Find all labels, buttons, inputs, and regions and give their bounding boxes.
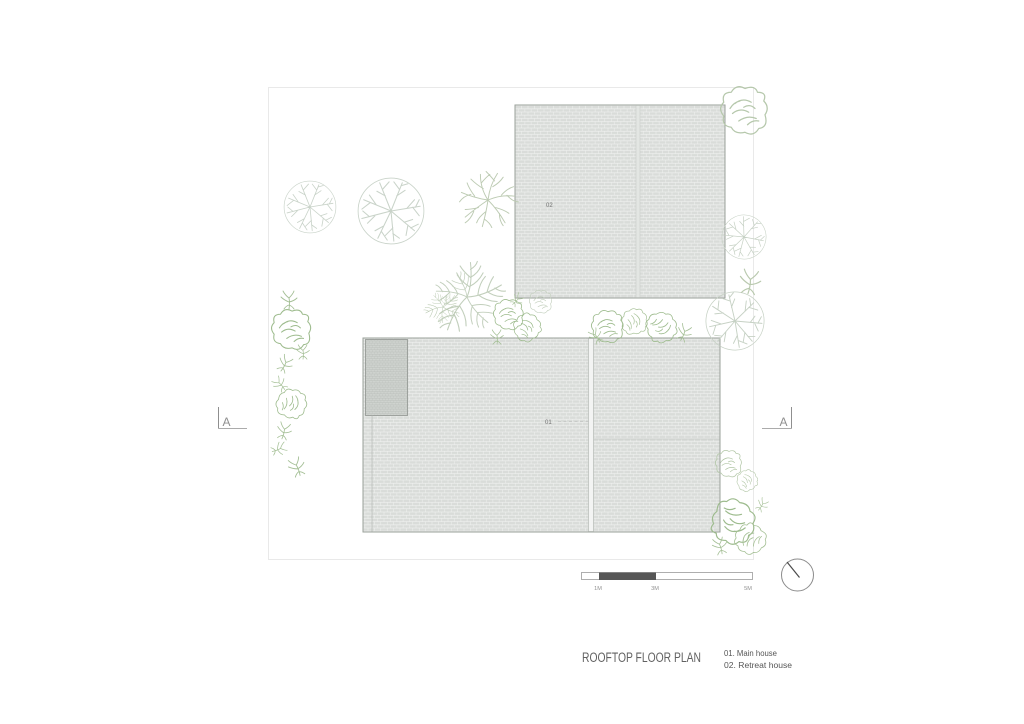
sprig-icon bbox=[738, 269, 763, 296]
retreat-roof-label: 02 bbox=[546, 203, 553, 209]
leaf-plant-icon bbox=[434, 261, 508, 337]
tree-icon bbox=[358, 178, 424, 244]
sprig-icon bbox=[297, 345, 310, 359]
tree-icon bbox=[284, 181, 336, 233]
sprig-icon bbox=[270, 441, 288, 458]
shrub-icon bbox=[721, 87, 768, 134]
main-roof-slab bbox=[363, 338, 720, 532]
sprig-icon bbox=[754, 497, 770, 514]
branch-tree-icon bbox=[460, 172, 519, 228]
section-marker-left: A bbox=[219, 407, 248, 429]
section-marker-right: A bbox=[762, 407, 792, 429]
floor-plan-drawing: 02 01 bbox=[0, 0, 1024, 724]
shrub-icon bbox=[619, 307, 649, 336]
main-roof-label: 01 bbox=[545, 420, 552, 426]
sprig-icon bbox=[270, 374, 289, 393]
scale-label-5m: 5M bbox=[744, 586, 752, 592]
legend-item-main-house: 01. Main house bbox=[724, 648, 777, 658]
legend-item-retreat-house: 02. Retreat house bbox=[724, 660, 792, 670]
drawing-title: ROOFTOP FLOOR PLAN bbox=[582, 650, 701, 665]
shrub-icon bbox=[493, 299, 523, 329]
retreat-roof-slab bbox=[515, 105, 725, 298]
shrub-icon bbox=[273, 385, 311, 422]
north-indicator bbox=[782, 559, 814, 591]
main-roof-dark-patch bbox=[366, 340, 408, 416]
main-house-roof: 01 bbox=[363, 338, 720, 532]
title-block: ROOFTOP FLOOR PLAN 01. Main house 02. Re… bbox=[582, 648, 792, 670]
scale-bar-dark-segment bbox=[599, 573, 656, 581]
scale-label-1m: 1M bbox=[594, 586, 602, 592]
section-letter-left: A bbox=[223, 415, 231, 429]
retreat-house-roof: 02 bbox=[515, 105, 725, 298]
shrub-icon bbox=[733, 466, 761, 494]
sprig-icon bbox=[275, 353, 296, 374]
retreat-roof-ridge bbox=[636, 106, 640, 298]
sprig-icon bbox=[275, 421, 293, 440]
scale-bar: 1M 3M 5M bbox=[582, 573, 753, 593]
sprig-icon bbox=[281, 291, 297, 309]
shrub-icon bbox=[729, 518, 771, 560]
section-letter-right: A bbox=[780, 415, 788, 429]
main-roof-seam bbox=[589, 339, 594, 532]
sprig-icon bbox=[286, 456, 307, 478]
scale-label-3m: 3M bbox=[651, 586, 659, 592]
floor-plan-sheet: 02 01 bbox=[0, 0, 1024, 724]
shrub-icon bbox=[272, 310, 311, 350]
